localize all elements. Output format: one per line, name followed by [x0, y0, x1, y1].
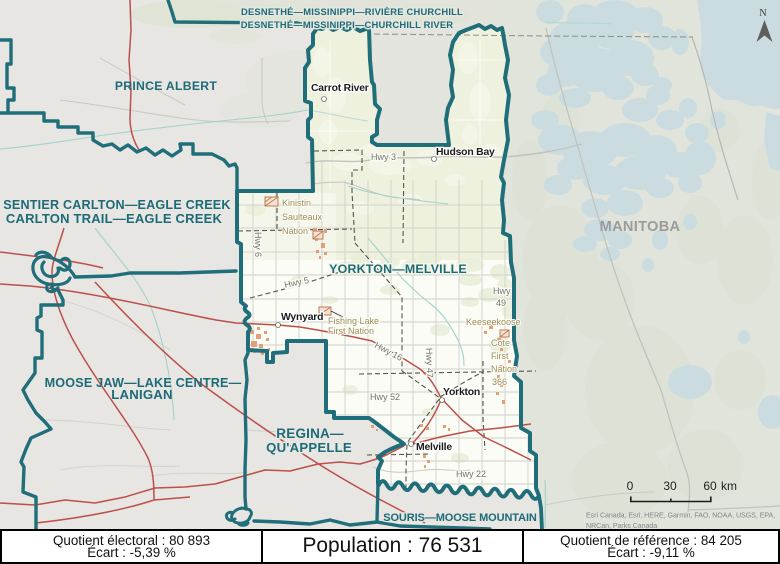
- svg-text:Hwy 3: Hwy 3: [371, 152, 396, 162]
- svg-text:Hwy 6: Hwy 6: [253, 232, 263, 257]
- svg-text:MANITOBA: MANITOBA: [600, 219, 681, 235]
- svg-text:30: 30: [663, 479, 677, 493]
- svg-text:DESNETHÉ—MISSINIPPI—CHURCHILL: DESNETHÉ—MISSINIPPI—CHURCHILL RIVER: [241, 19, 454, 30]
- svg-text:Kinistin: Kinistin: [282, 198, 311, 208]
- svg-text:60: 60: [703, 479, 717, 493]
- svg-text:LANIGAN: LANIGAN: [111, 387, 172, 402]
- svg-text:YORKTON—MELVILLE: YORKTON—MELVILLE: [329, 262, 467, 276]
- svg-text:Hwy 22: Hwy 22: [456, 469, 486, 479]
- svg-text:PRINCE ALBERT: PRINCE ALBERT: [115, 79, 218, 93]
- svg-text:Carrot River: Carrot River: [311, 83, 369, 94]
- svg-text:366: 366: [492, 377, 507, 387]
- svg-text:Hwy: Hwy: [493, 286, 511, 296]
- svg-text:DESNETHÉ—MISSINIPPI—RIVIÈRE CH: DESNETHÉ—MISSINIPPI—RIVIÈRE CHURCHILL: [241, 6, 463, 17]
- svg-text:Cote: Cote: [491, 338, 510, 348]
- svg-text:QU'APPELLE: QU'APPELLE: [266, 440, 352, 455]
- svg-text:Hudson Bay: Hudson Bay: [436, 147, 495, 158]
- svg-text:Keeseekoose: Keeseekoose: [466, 317, 521, 327]
- svg-text:SOURIS—MOOSE MOUNTAIN: SOURIS—MOOSE MOUNTAIN: [383, 512, 537, 524]
- svg-text:Wynyard: Wynyard: [281, 312, 323, 323]
- svg-text:N: N: [759, 8, 766, 19]
- svg-text:Esri Canada, Esri, HERE, Garmi: Esri Canada, Esri, HERE, Garmin, FAO, NO…: [586, 512, 775, 520]
- svg-text:Melville: Melville: [416, 442, 452, 453]
- svg-text:Fishing Lake: Fishing Lake: [328, 316, 379, 326]
- svg-text:SENTIER CARLTON—EAGLE CREEK: SENTIER CARLTON—EAGLE CREEK: [3, 198, 230, 212]
- svg-text:Nation: Nation: [282, 226, 308, 236]
- svg-text:0: 0: [627, 479, 634, 493]
- svg-text:REGINA—: REGINA—: [276, 426, 344, 441]
- svg-text:Yorkton: Yorkton: [443, 387, 480, 398]
- svg-text:Hwy 52: Hwy 52: [370, 392, 400, 402]
- svg-text:Nation: Nation: [491, 364, 517, 374]
- svg-text:First Nation: First Nation: [328, 326, 374, 336]
- svg-text:49: 49: [496, 298, 506, 308]
- svg-text:First: First: [491, 351, 509, 361]
- svg-text:Hwy 47: Hwy 47: [424, 348, 435, 378]
- svg-text:Saulteaux: Saulteaux: [282, 212, 323, 222]
- svg-text:km: km: [721, 479, 737, 493]
- svg-text:CARLTON TRAIL—EAGLE CREEK: CARLTON TRAIL—EAGLE CREEK: [6, 211, 223, 226]
